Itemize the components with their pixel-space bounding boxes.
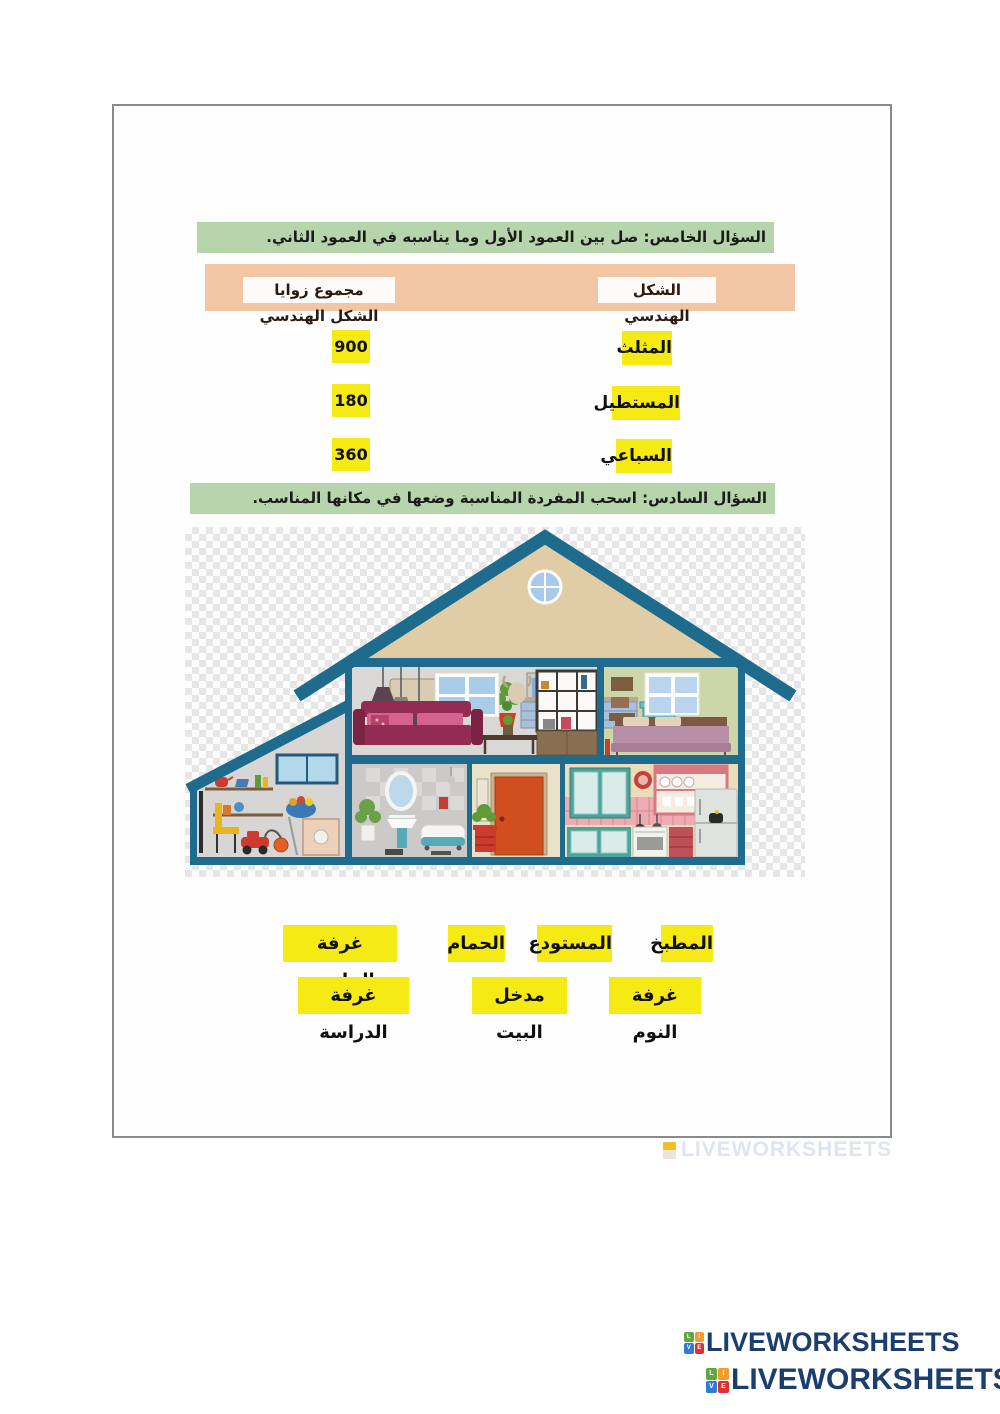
match-value-180[interactable]: 180 — [332, 384, 370, 417]
liveworksheets-logo-2[interactable]: L I V E LIVEWORKSHEETS — [706, 1363, 1000, 1397]
sink-icon — [387, 819, 417, 828]
house-illustration — [185, 527, 805, 877]
column-header-shape: الشكل الهندسي — [598, 277, 716, 303]
match-shape-heptagon[interactable]: السباعي — [616, 439, 672, 473]
logo-wordmark: LIVEWORKSHEETS — [706, 1327, 960, 1358]
watermark-text: LIVEWORKSHEETS — [681, 1138, 892, 1162]
hall-table-icon — [475, 830, 495, 852]
logo-letter-l: L — [684, 1332, 694, 1343]
match-value-360[interactable]: 360 — [332, 438, 370, 471]
logo-letter-i: I — [718, 1368, 729, 1380]
logo-letter-e: E — [695, 1343, 705, 1354]
logo-letter-l: L — [706, 1368, 717, 1380]
skull-decor-icon — [508, 682, 526, 704]
logo-wordmark: LIVEWORKSHEETS — [731, 1363, 1000, 1397]
vacuum-icon — [274, 838, 288, 852]
logo-letter-v: V — [706, 1381, 717, 1393]
liveworksheets-logo-1[interactable]: L I V E LIVEWORKSHEETS — [684, 1327, 960, 1358]
question6-header: السؤال السادس: اسحب المفردة المناسبة وضع… — [190, 483, 775, 514]
match-value-900[interactable]: 900 — [332, 330, 370, 363]
word-bedroom[interactable]: غرفة النوم — [609, 977, 701, 1014]
word-bathroom[interactable]: الحمام — [448, 925, 505, 962]
mirror-icon — [387, 773, 415, 809]
entrance-hall — [472, 773, 547, 855]
match-shape-rectangle[interactable]: المستطيل — [612, 386, 680, 420]
word-entrance[interactable]: مدخل البيت — [472, 977, 567, 1014]
shower-icon — [447, 776, 455, 784]
liveworksheets-grid-icon: L I V E — [706, 1368, 729, 1393]
worksheet-page: السؤال الخامس: صل بين العمود الأول وما ي… — [0, 0, 1000, 1414]
watermark-logo-icon — [663, 1142, 676, 1159]
front-door-icon — [495, 777, 543, 855]
word-kitchen[interactable]: المطبخ — [661, 925, 713, 962]
column-header-angles: مجموع زوايا الشكل الهندسي — [243, 277, 395, 303]
word-sitting-room[interactable]: غرفة الجلوس — [283, 925, 397, 962]
watermark: LIVEWORKSHEETS — [663, 1137, 892, 1163]
question5-header: السؤال الخامس: صل بين العمود الأول وما ي… — [197, 222, 774, 253]
logo-letter-i: I — [695, 1332, 705, 1343]
kitchen — [565, 766, 738, 857]
liveworksheets-grid-icon: L I V E — [684, 1332, 704, 1354]
logo-letter-v: V — [684, 1343, 694, 1354]
house-cross-section — [185, 527, 805, 877]
word-study-room[interactable]: غرفة الدراسة — [298, 977, 409, 1014]
match-shape-triangle[interactable]: المثلث — [622, 331, 672, 365]
word-storage[interactable]: المستودع — [537, 925, 612, 962]
logo-letter-e: E — [718, 1381, 729, 1393]
chair-icon — [215, 803, 222, 831]
